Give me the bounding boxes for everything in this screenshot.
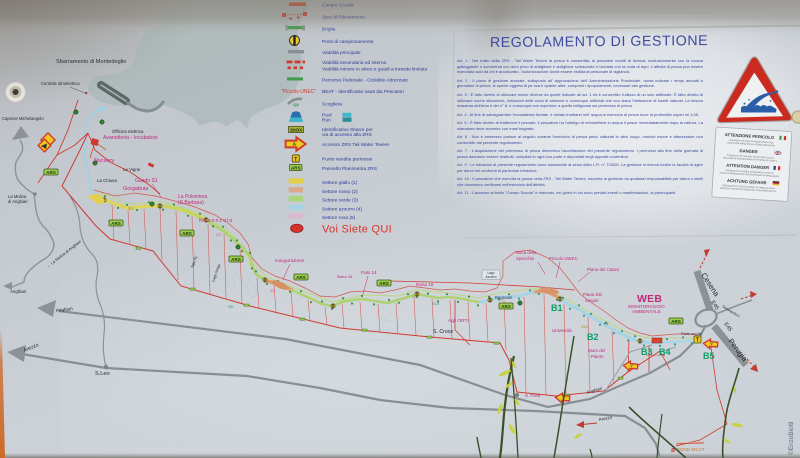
svg-text:A: A (710, 341, 713, 345)
svg-text:BECAUSE OF MANOEUVRES ON HYDRA: BECAUSE OF MANOEUVRES ON HYDRAULIC PLANT… (723, 156, 777, 162)
svg-text:Sospiri: Sospiri (585, 298, 598, 303)
svg-text:B4: B4 (659, 347, 671, 357)
svg-text:POSSIBILITY OF SUDDEN FLOOD WA: POSSIBILITY OF SUDDEN FLOOD WAVES ALSO (727, 154, 775, 160)
svg-text:POSSIBILITE DE CRUES SOUDAINES: POSSIBILITE DE CRUES SOUDAINES A LA SUIT… (725, 169, 774, 175)
svg-text:Palo 14: Palo 14 (361, 270, 377, 275)
svg-text:Briglia: Briglia (322, 27, 336, 33)
svg-text:Caprese Michelangelo: Caprese Michelangelo (2, 116, 44, 121)
svg-text:DANGER: DANGER (739, 148, 757, 154)
svg-text:B1: B1 (551, 303, 563, 313)
svg-text:Campo scuola: Campo scuola (646, 353, 666, 357)
svg-text:Piccolo UWEC: Piccolo UWEC (549, 256, 578, 261)
svg-text:MONITORAGGIO: MONITORAGGIO (628, 304, 665, 309)
svg-text:POSSIBILITA DI ONDE DI PIENA I: POSSIBILITA DI ONDE DI PIENA IMPROVVISE (729, 139, 774, 145)
svg-text:Ponti di campionamento: Ponti di campionamento (322, 39, 374, 45)
svg-text:B2: B2 (587, 332, 599, 342)
svg-text:Arezzo: Arezzo (598, 415, 613, 422)
svg-text:ARS: ARS (111, 221, 121, 226)
svg-text:Sbarramento di Montedoglio: Sbarramento di Montedoglio (56, 59, 126, 65)
svg-text:S9: S9 (412, 294, 418, 299)
svg-text:SEDE MCAT: SEDE MCAT (677, 447, 705, 453)
svg-text:Sansepolcro: Sansepolcro (721, 304, 740, 318)
svg-text:Avanotteria - Incubatoio: Avanotteria - Incubatoio (103, 135, 158, 141)
svg-text:Pool: Pool (322, 112, 332, 118)
svg-text:ARS: ARS (501, 304, 511, 309)
svg-text:E45: E45 (722, 322, 733, 333)
svg-text:Bagnanti: Bagnanti (495, 295, 512, 300)
svg-text:La Molina: La Molina (8, 194, 27, 199)
svg-text:Anghiari: Anghiari (586, 386, 603, 395)
svg-text:Università: Università (552, 328, 572, 333)
svg-text:Piana del Caiani: Piana del Caiani (587, 267, 619, 272)
svg-text:Voi Siete QUI: Voi Siete QUI (322, 224, 392, 236)
svg-text:Cesena: Cesena (699, 271, 721, 299)
svg-text:1NOX: 1NOX (290, 127, 303, 132)
svg-text:Perugia: Perugia (726, 337, 749, 364)
svg-text:A: A (562, 395, 565, 399)
svg-text:lago fry: lago fry (190, 255, 198, 268)
svg-text:Buca della: Buca della (516, 250, 537, 255)
svg-text:S2: S2 (216, 232, 222, 237)
svg-text:Gorgabuia: Gorgabuia (123, 186, 148, 192)
svg-text:S3: S3 (270, 288, 276, 293)
svg-text:Nasoncolo: Nasoncolo (199, 218, 233, 224)
svg-text:Settore rosso (2): Settore rosso (2) (322, 189, 358, 195)
svg-text:Percorso Pedonale - Ciclabile: Percorso Pedonale - Ciclabile Attrezzato (322, 78, 408, 84)
svg-text:Rana 18: Rana 18 (416, 282, 434, 287)
svg-text:Run: Run (322, 118, 331, 124)
svg-text:(S.Barbara): (S.Barbara) (178, 200, 204, 206)
svg-text:Anghiari: Anghiari (10, 289, 26, 294)
svg-text:Guado S1: Guado S1 (135, 178, 158, 184)
svg-text:Piana Dei: Piana Dei (583, 292, 602, 297)
svg-text:Viabilità secondaria ed intern: Viabilità secondaria ed interna (322, 60, 387, 66)
svg-text:via di accesso alla ZRS: via di accesso alla ZRS (322, 132, 372, 138)
svg-text:S. Croce: S. Croce (433, 329, 453, 335)
svg-text:Inaugurazione: Inaugurazione (275, 258, 305, 263)
svg-text:Scogliera: Scogliera (322, 101, 342, 107)
svg-text:Settore azzurro (4): Settore azzurro (4) (322, 207, 362, 213)
svg-text:a: a (671, 447, 675, 454)
svg-text:B5: B5 (703, 351, 715, 361)
svg-text:Barra 18: Barra 18 (337, 274, 353, 279)
svg-text:Identificativo Sbarre per: Identificativo Sbarre per (322, 127, 373, 133)
svg-text:ACHTUNG GEFAHR: ACHTUNG GEFAHR (727, 178, 767, 185)
svg-text:REGOLAMENTO DI GESTIONE: REGOLAMENTO DI GESTIONE (490, 33, 708, 51)
svg-text:MOEGLICHKEIT PLOETZLICHER FLUT: MOEGLICHKEIT PLOETZLICHER FLUTWELLEN AUC… (722, 184, 775, 190)
svg-text:Settore verde (3): Settore verde (3) (322, 198, 358, 204)
svg-text:WEB: WEB (637, 293, 662, 305)
svg-text:ARS: ARS (46, 170, 56, 175)
svg-text:Nursery: Nursery (94, 158, 114, 164)
svg-text:B3: B3 (641, 347, 653, 357)
svg-text:ANCHE PER MANOVRE SU OPERE IDR: ANCHE PER MANOVRE SU OPERE IDRAULICHE (727, 141, 775, 147)
svg-text:S12: S12 (581, 324, 589, 329)
svg-text:Azzurro: Azzurro (486, 275, 497, 279)
svg-text:Settore giallo (1): Settore giallo (1) (322, 180, 358, 186)
svg-text:di Anghiari: di Anghiari (8, 199, 28, 204)
svg-text:Anghiari: Anghiari (56, 306, 73, 313)
svg-text:ARS: ARS (296, 275, 306, 280)
svg-text:ZUFOLGE VON BETAETIGUNG DER ST: ZUFOLGE VON BETAETIGUNG DER STAUWERKSTAE… (720, 187, 777, 193)
svg-text:P-t: P-t (604, 322, 608, 326)
svg-text:La Chiusa: La Chiusa (97, 178, 117, 183)
svg-text:BEAT - Identificativi usati da: BEAT - Identificativi usati dai Pescator… (322, 89, 404, 95)
svg-text:Muro del: Muro del (588, 348, 605, 353)
svg-text:T: T (696, 338, 699, 344)
svg-text:ARS: ARS (182, 231, 192, 236)
svg-text:ARS: ARS (379, 281, 389, 286)
svg-text:Ponte vecchio: Ponte vecchio (681, 332, 702, 336)
svg-text:Settore rosa (5): Settore rosa (5) (322, 215, 356, 221)
svg-text:S. Fiora: S. Fiora (525, 393, 541, 398)
svg-text:Arezzo: Arezzo (23, 342, 40, 354)
svg-text:S.Leo: S.Leo (95, 371, 110, 377)
svg-text:Accesso ZRS Tail Water Tevere: Accesso ZRS Tail Water Tevere (322, 142, 389, 148)
svg-text:S9: S9 (293, 103, 299, 108)
svg-text:Lago lungo: Lago lungo (211, 263, 221, 282)
svg-text:T: T (294, 157, 298, 163)
svg-text:Viabilità minore in alveo e gu: Viabilità minore in alveo e guadi a tran… (322, 66, 428, 72)
svg-text:S1: S1 (128, 206, 134, 211)
svg-text:Le Vigne: Le Vigne (123, 167, 141, 172)
svg-text:S8: S8 (228, 304, 234, 309)
svg-text:Pannello Planimetria ZRS: Pannello Planimetria ZRS (322, 166, 377, 172)
svg-text:Pianto: Pianto (591, 354, 604, 359)
svg-text:©EnzoBiotti: ©EnzoBiotti (787, 422, 795, 455)
svg-text:A: A (292, 142, 296, 148)
svg-text:"Piccolo UNEC": "Piccolo UNEC" (281, 89, 316, 95)
svg-text:Centrale idroelettrica: Centrale idroelettrica (41, 81, 80, 86)
svg-text:Viabilità principale: Viabilità principale (322, 50, 361, 56)
svg-text:Spot di Rilevamento: Spot di Rilevamento (322, 15, 365, 21)
svg-text:AMBIENTALE: AMBIENTALE (632, 309, 661, 314)
svg-text:ARS: ARS (671, 319, 681, 324)
svg-text:Specchio: Specchio (516, 256, 535, 261)
svg-text:A: A (630, 363, 633, 367)
svg-text:S15: S15 (432, 301, 440, 306)
svg-text:La Polveriera: La Polveriera (178, 194, 208, 200)
svg-text:Punto vendita permessi: Punto vendita permessi (322, 157, 372, 163)
svg-text:← La Molina di Anghiari: ← La Molina di Anghiari (46, 239, 82, 269)
svg-text:ATTENTION DANGER: ATTENTION DANGER (726, 163, 769, 171)
svg-text:ARS: ARS (291, 165, 301, 170)
svg-text:ARS: ARS (231, 257, 241, 262)
svg-text:E45: E45 (709, 300, 719, 311)
svg-text:ATTENZIONE PERICOLO: ATTENZIONE PERICOLO (725, 132, 775, 140)
svg-text:Campo Scuola: Campo Scuola (322, 2, 354, 8)
svg-text:AUSSI DE MANOEUVRES SUR OUVRAG: AUSSI DE MANOEUVRES SUR OUVRAGES HYDRAUL… (719, 171, 779, 178)
svg-text:Officina elettrica: Officina elettrica (112, 129, 144, 134)
svg-text:Lago: Lago (487, 271, 494, 275)
svg-text:Agli ORTI: Agli ORTI (448, 318, 469, 324)
